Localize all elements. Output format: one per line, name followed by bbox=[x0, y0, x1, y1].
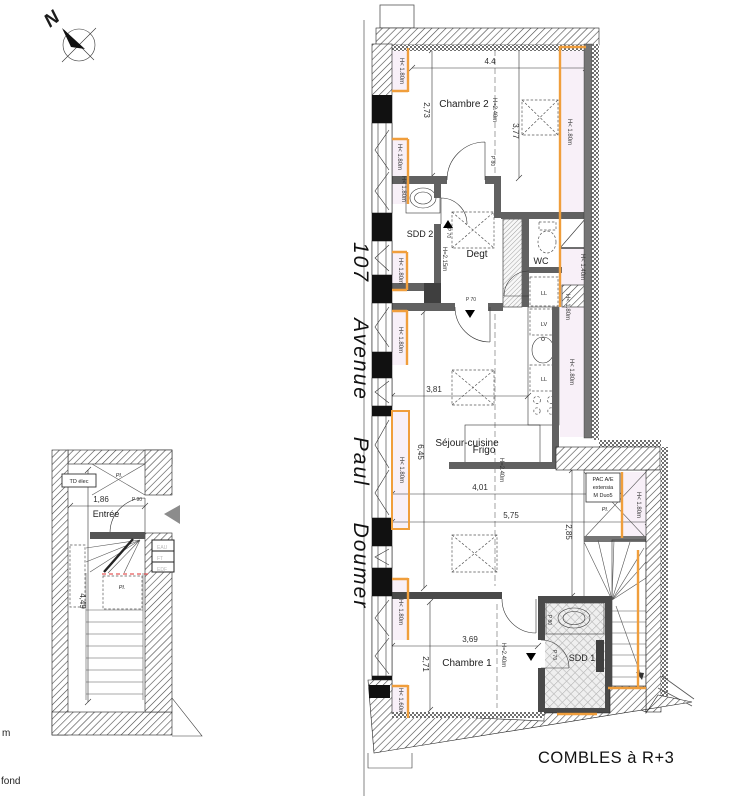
stair-cut-line bbox=[104, 539, 133, 572]
eau-label: EAU bbox=[157, 545, 168, 551]
right-wall-lower bbox=[646, 470, 661, 712]
pac-pl-label: Pl. bbox=[602, 507, 608, 513]
wc-label: WC bbox=[534, 256, 549, 266]
entree-left-wall bbox=[52, 450, 68, 735]
north-arrow-icon bbox=[62, 28, 85, 49]
dim-4-49: 4,49 bbox=[78, 593, 87, 609]
pac-line2: extensia bbox=[593, 485, 614, 491]
entrance-arrow-icon bbox=[164, 505, 180, 524]
h180-c: H< 1.80m bbox=[397, 258, 403, 284]
h180-r1: H< 1.80m bbox=[566, 119, 572, 145]
top-insulation bbox=[392, 45, 584, 51]
dim-5-75: 5,75 bbox=[503, 511, 519, 520]
ll-top-label: LL bbox=[541, 291, 547, 297]
dim-6-45: 6,45 bbox=[416, 444, 425, 460]
ft-label: FT bbox=[157, 556, 163, 562]
street-name: 107 Avenue Paul Doumer bbox=[349, 242, 372, 609]
roof-windows bbox=[452, 100, 558, 572]
floorplan-page: N 107 Avenue Paul Doumer m fond bbox=[0, 0, 741, 800]
sdd1-label: SDD 1 bbox=[569, 653, 596, 663]
dim-3-77: 3,77 bbox=[511, 123, 520, 139]
right-wall-upper bbox=[584, 44, 592, 438]
entree-bottom-wall bbox=[52, 712, 172, 735]
stair-closet bbox=[103, 576, 142, 609]
entree-plan: TD élec Pl. P 90 1,86 Entrée Pl. 4,49 EA… bbox=[52, 450, 202, 736]
floor-plan-svg: N 107 Avenue Paul Doumer m fond bbox=[0, 0, 741, 800]
door-p90-label: P 90 bbox=[132, 497, 142, 503]
h180-f: H< 1.80m bbox=[397, 599, 403, 625]
td-elec-label: TD élec bbox=[70, 479, 89, 485]
entree-topright-wall bbox=[145, 450, 172, 495]
arrow-down-icon bbox=[465, 310, 475, 318]
door-p70-degt: P 70 bbox=[466, 297, 476, 303]
dim-3-69: 3,69 bbox=[462, 635, 478, 644]
kitchen-sink-icon bbox=[532, 337, 554, 363]
h180-d: H< 1.80m bbox=[397, 327, 403, 353]
right-insulation-upper bbox=[592, 44, 599, 440]
door-chambre2 bbox=[447, 142, 485, 180]
door-chambre1 bbox=[502, 599, 536, 633]
ll-label: LL bbox=[541, 377, 547, 383]
hob-icon bbox=[533, 396, 554, 414]
h240-3: H=2.40m bbox=[500, 643, 506, 668]
right-insulation-lower bbox=[661, 447, 668, 698]
north-compass: N bbox=[40, 6, 96, 62]
pl-stair-label: Pl. bbox=[119, 585, 125, 591]
step-wall bbox=[556, 447, 660, 470]
arrow-down-sdd1-icon bbox=[526, 653, 536, 661]
pac-line1: PAC A/E bbox=[593, 477, 614, 483]
dim-4-01: 4,01 bbox=[472, 483, 488, 492]
top-wall bbox=[376, 28, 599, 45]
dim-2-73: 2,73 bbox=[422, 102, 431, 118]
h240-2: H=2.40m bbox=[498, 458, 504, 483]
h180-b2: H< 1.80m bbox=[400, 176, 406, 202]
dim-1-86: 1,86 bbox=[93, 495, 109, 504]
left-windows bbox=[372, 95, 392, 698]
dim-2-85: 2,85 bbox=[564, 524, 573, 540]
entree-label: Entrée bbox=[93, 509, 120, 519]
entree-stairs: Pl. bbox=[70, 532, 148, 700]
dim-3-81: 3,81 bbox=[426, 385, 442, 394]
h240-1: H=2.40m bbox=[491, 98, 497, 123]
h180-a: H< 1.80m bbox=[398, 58, 404, 84]
north-label: N bbox=[40, 6, 65, 32]
plan-caption: COMBLES à R+3 bbox=[538, 749, 674, 767]
h215: H=2.15m bbox=[441, 247, 447, 272]
toilet-icon bbox=[538, 231, 556, 253]
sloped-ceiling-strip bbox=[503, 219, 522, 307]
wall-stub bbox=[380, 5, 414, 28]
sdd2-basin-icon bbox=[410, 188, 436, 208]
pac-line3: M Duo5 bbox=[593, 493, 612, 499]
edge-label-fond: fond bbox=[1, 776, 20, 787]
lv-label: LV bbox=[541, 322, 548, 328]
door-p70-sdd2: P 70 bbox=[445, 228, 451, 238]
bottom-insulation bbox=[392, 712, 544, 718]
wc-fixtures bbox=[538, 218, 586, 253]
ridge-lines bbox=[495, 50, 497, 708]
degt-label: Degt bbox=[466, 249, 487, 260]
entree-slope-outline bbox=[172, 698, 202, 736]
door-sdd2 bbox=[441, 198, 467, 224]
dim-4-4: 4.4 bbox=[484, 57, 496, 66]
h180-pac: H< 1.80m bbox=[635, 492, 641, 518]
arrow-up-icon bbox=[443, 220, 453, 228]
h180-r3: H< 1.80m bbox=[568, 359, 574, 385]
utility-boxes: EAU FT EDF bbox=[152, 540, 174, 573]
bottom-step-outline bbox=[368, 753, 412, 768]
h180-e: H< 1.80m bbox=[398, 457, 404, 483]
h180-r2: H< 1.80m bbox=[564, 294, 570, 320]
door-p80-chambre1: P 80 bbox=[546, 615, 552, 625]
door-p80-chambre2: P 80 bbox=[489, 156, 495, 166]
chambre1-label: Chambre 1 bbox=[442, 658, 492, 669]
closet-cross bbox=[92, 464, 145, 495]
pl-top-label: Pl. bbox=[116, 473, 122, 479]
edge-label-m: m bbox=[2, 728, 10, 739]
h140: H< 1.40m bbox=[579, 254, 585, 280]
sdd2-label: SDD 2 bbox=[407, 229, 434, 239]
h180-b1: H< 1.80m bbox=[396, 144, 402, 170]
chambre2-label: Chambre 2 bbox=[439, 99, 489, 110]
edf-label: EDF bbox=[157, 567, 167, 573]
step-insulation bbox=[599, 440, 661, 447]
dim-2-71: 2,71 bbox=[421, 656, 430, 672]
h160-g: H< 1.60m bbox=[397, 688, 403, 714]
door-p70-sdd1: P 70 bbox=[551, 650, 557, 660]
frigo-label: Frigo bbox=[473, 445, 496, 456]
